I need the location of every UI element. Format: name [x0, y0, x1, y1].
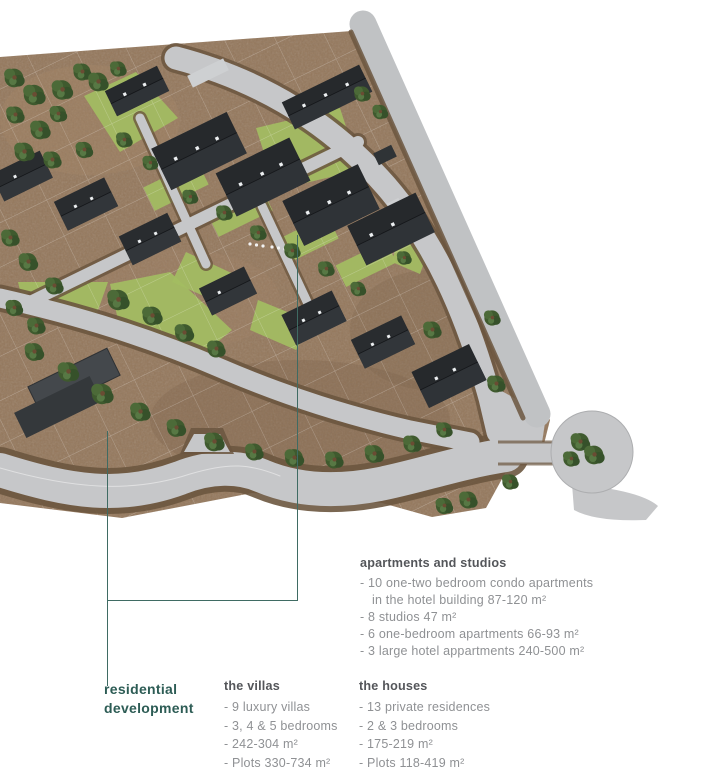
site-plan-map — [0, 0, 728, 540]
villas-heading: the villas — [224, 679, 338, 693]
list-item: - 2 & 3 bedrooms — [359, 717, 490, 736]
list-item: - 13 private residences — [359, 698, 490, 717]
houses-section: the houses - 13 private residences - 2 &… — [359, 679, 490, 772]
leader-line-vertical-right — [297, 235, 298, 601]
apartments-section: apartments and studios - 10 one-two bedr… — [360, 556, 593, 660]
list-item: - 175-219 m² — [359, 735, 490, 754]
list-item: - 9 luxury villas — [224, 698, 338, 717]
list-item: - 10 one-two bedroom condo apartments — [360, 575, 593, 592]
list-item: in the hotel building 87-120 m² — [360, 592, 593, 609]
label-line-1: residential — [104, 680, 194, 699]
leader-line-vertical-left — [107, 431, 108, 686]
leader-line-horizontal — [107, 600, 298, 601]
list-item: - 242-304 m² — [224, 735, 338, 754]
residential-development-label: residential development — [104, 680, 194, 718]
list-item: - 3 large hotel appartments 240-500 m² — [360, 643, 593, 660]
list-item: - Plots 118-419 m² — [359, 754, 490, 773]
site-plan-page: apartments and studios - 10 one-two bedr… — [0, 0, 728, 783]
list-item: - 6 one-bedroom apartments 66-93 m² — [360, 626, 593, 643]
villas-section: the villas - 9 luxury villas - 3, 4 & 5 … — [224, 679, 338, 772]
apartments-heading: apartments and studios — [360, 556, 593, 570]
list-item: - 8 studios 47 m² — [360, 609, 593, 626]
list-item: - 3, 4 & 5 bedrooms — [224, 717, 338, 736]
tree — [502, 474, 519, 489]
label-line-2: development — [104, 699, 194, 718]
houses-heading: the houses — [359, 679, 490, 693]
list-item: - Plots 330-734 m² — [224, 754, 338, 773]
